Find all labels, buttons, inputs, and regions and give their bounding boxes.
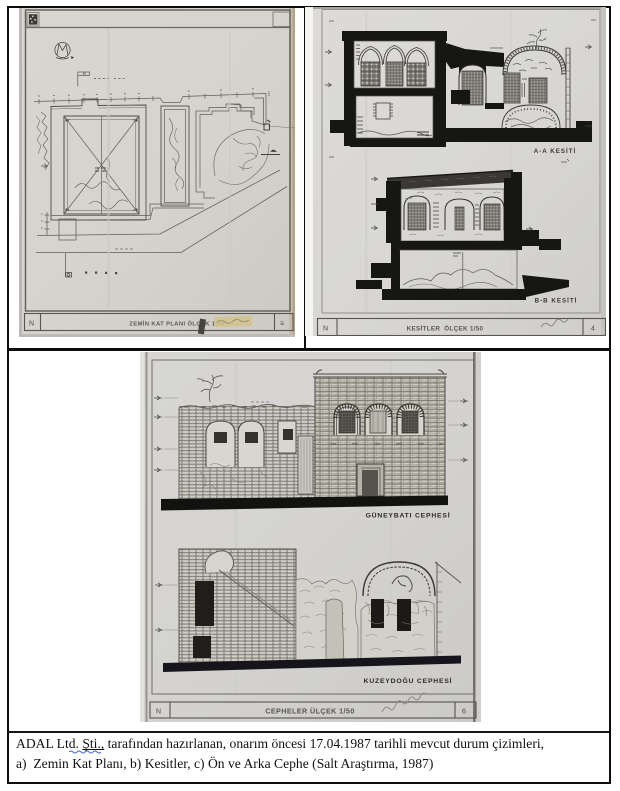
- svg-text:6: 6: [462, 709, 466, 716]
- svg-text:N: N: [156, 709, 161, 716]
- svg-text:CEPHELER ÜLÇEK 1/50: CEPHELER ÜLÇEK 1/50: [265, 707, 354, 716]
- svg-text:4: 4: [591, 326, 595, 333]
- svg-text:A-A KESİTİ: A-A KESİTİ: [534, 148, 576, 155]
- svg-text:N: N: [323, 326, 328, 333]
- svg-text:KUZEYDOĞU CEPHESİ: KUZEYDOĞU CEPHESİ: [364, 676, 453, 685]
- svg-text:≡: ≡: [280, 321, 284, 328]
- svg-text:ZEMİN KAT PLANI ÖLÇEK 1/50: ZEMİN KAT PLANI ÖLÇEK 1/50: [129, 321, 225, 328]
- svg-text:GÜNEYBATI CEPHESİ: GÜNEYBATI CEPHESİ: [366, 511, 451, 520]
- svg-text:B-B KESİTİ: B-B KESİTİ: [535, 298, 578, 305]
- svg-text:KESİTLER ÖLÇEK 1/50: KESİTLER ÖLÇEK 1/50: [407, 324, 484, 333]
- svg-text:N: N: [29, 321, 34, 328]
